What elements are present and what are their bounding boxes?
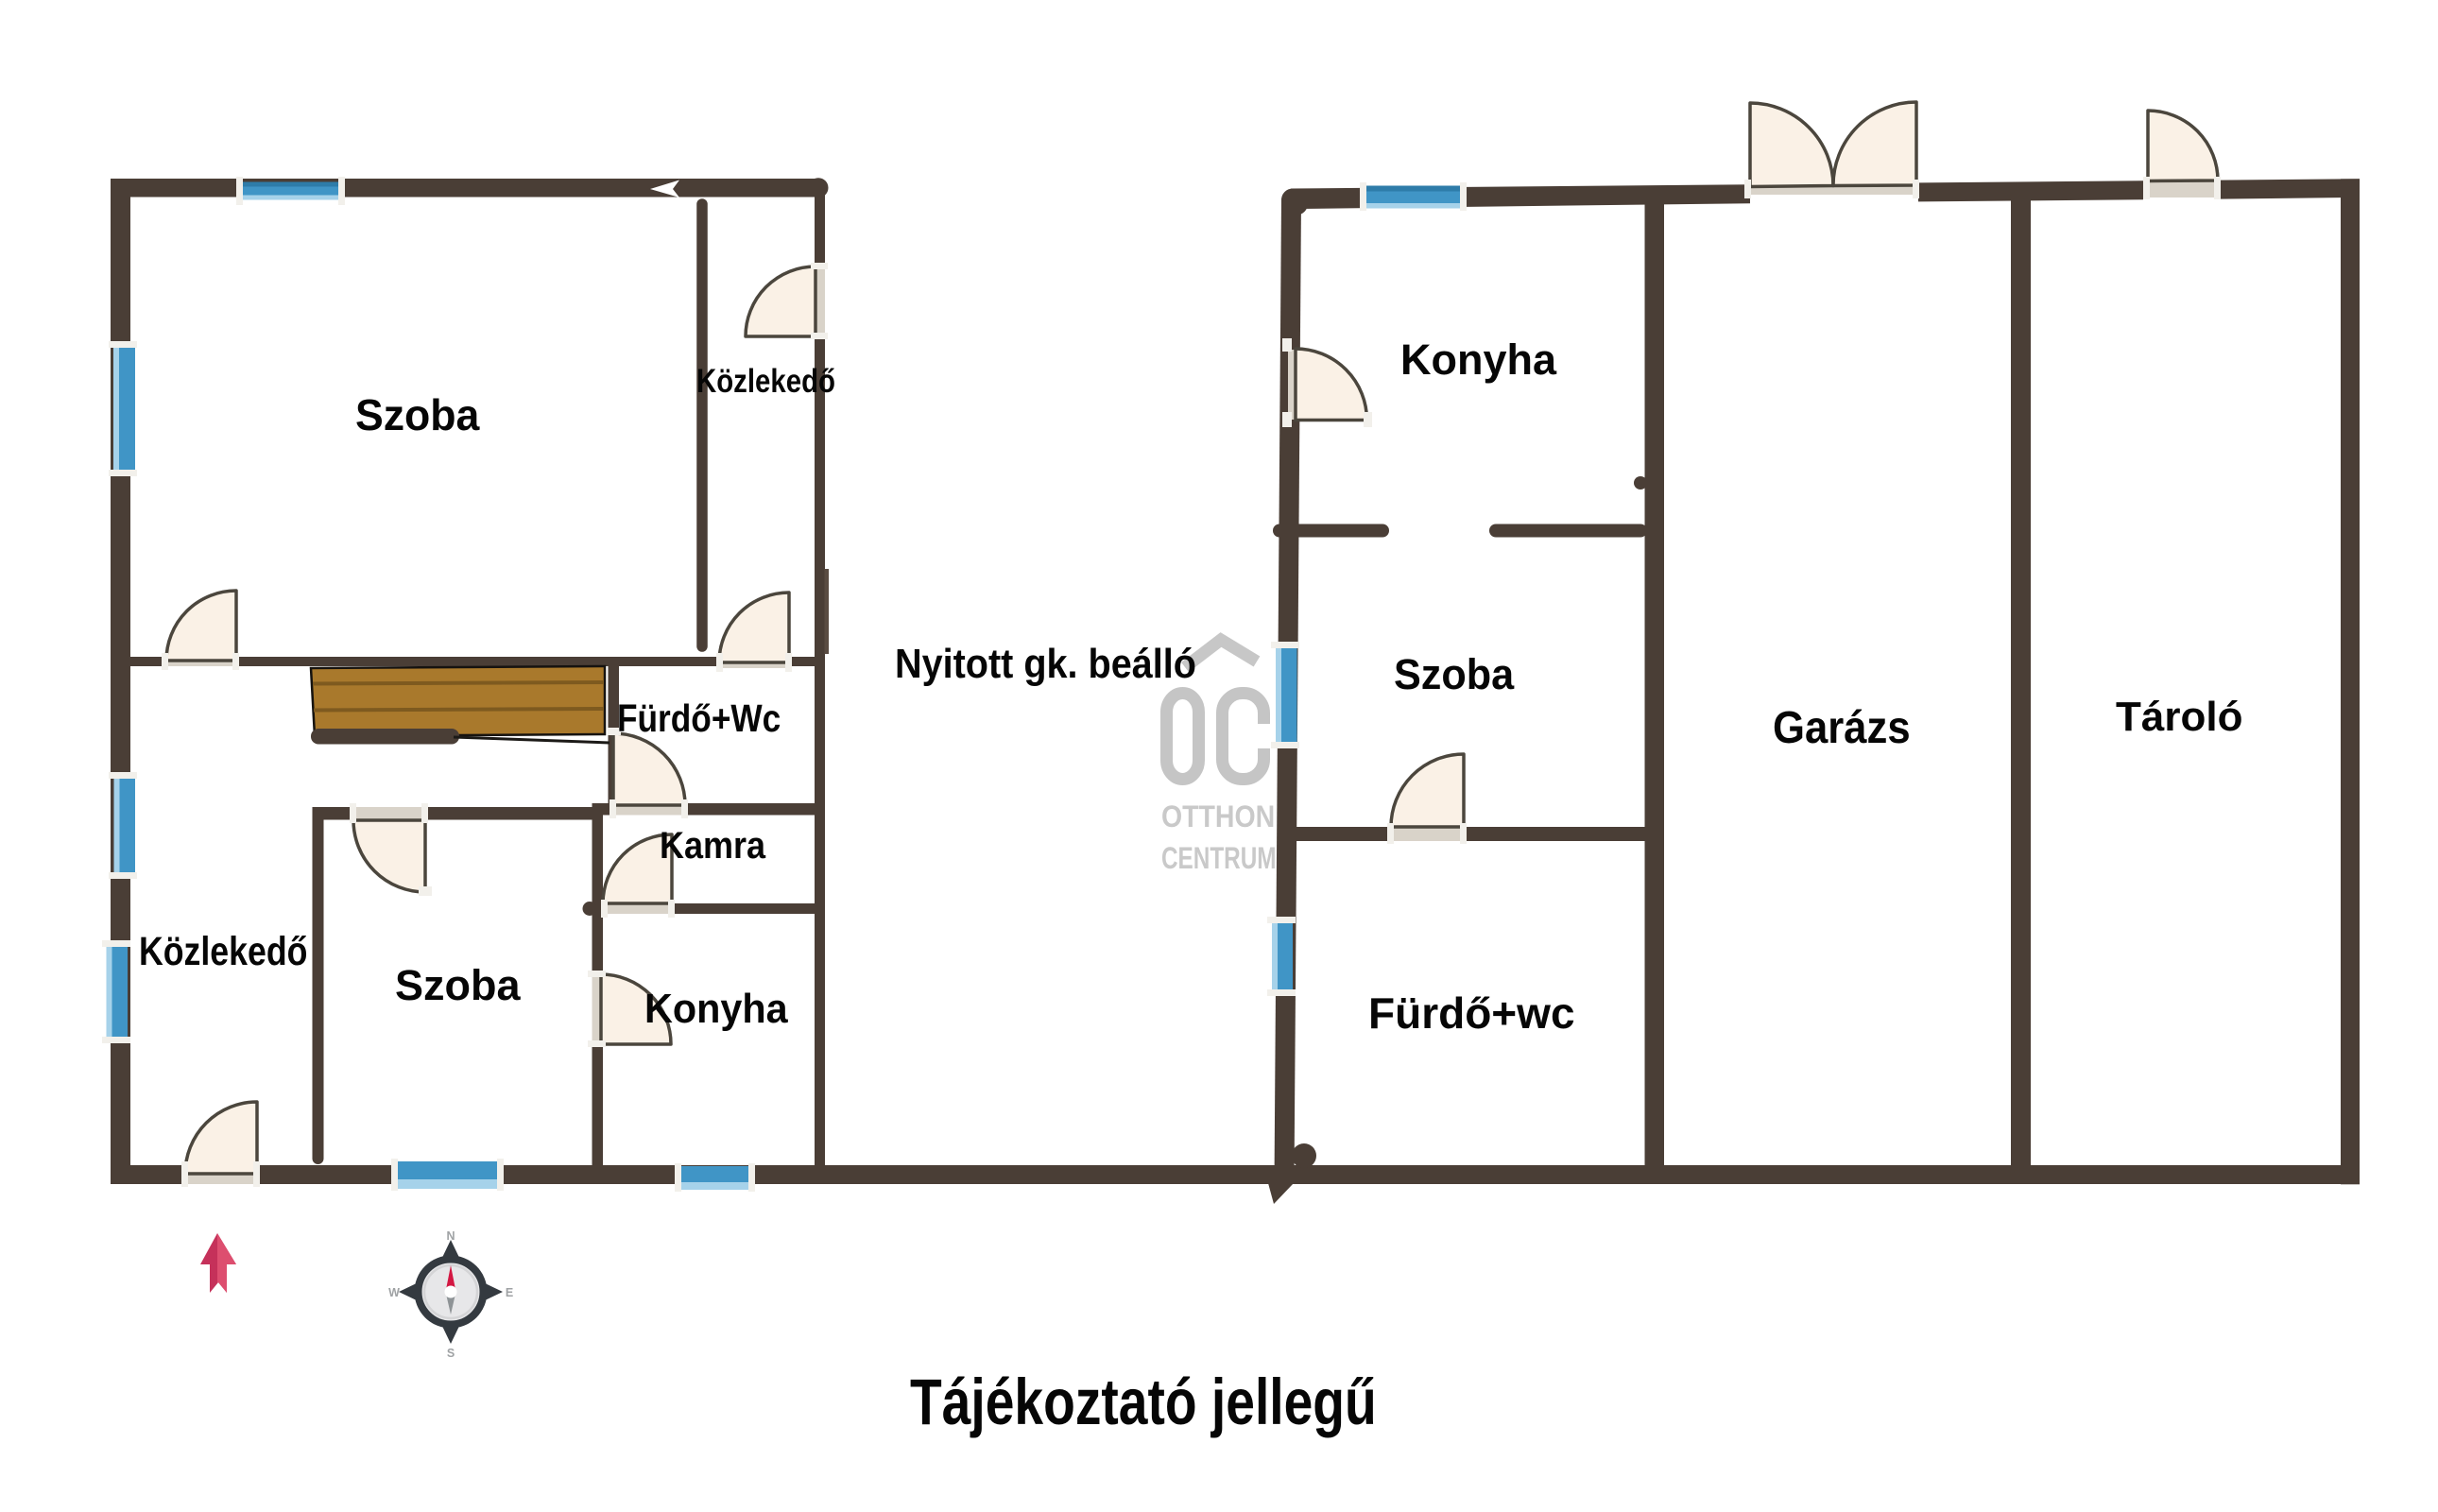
svg-text:Konyha: Konyha (644, 986, 789, 1032)
svg-text:Fürdő+wc: Fürdő+wc (1368, 988, 1575, 1038)
svg-text:E: E (506, 1286, 513, 1299)
svg-text:Közlekedő: Közlekedő (696, 363, 835, 400)
svg-text:S: S (447, 1347, 455, 1360)
svg-text:Garázs: Garázs (1773, 701, 1911, 752)
svg-text:Közlekedő: Közlekedő (139, 929, 307, 974)
svg-text:Kamra: Kamra (660, 825, 766, 867)
svg-text:Nyitott gk. beálló: Nyitott gk. beálló (895, 640, 1196, 686)
svg-text:N: N (446, 1229, 455, 1243)
svg-text:Konyha: Konyha (1400, 335, 1557, 384)
svg-text:Fürdő+Wc: Fürdő+Wc (617, 697, 781, 741)
svg-text:Tájékoztató jellegű: Tájékoztató jellegű (910, 1366, 1377, 1438)
svg-text:CENTRUM: CENTRUM (1161, 842, 1277, 876)
svg-text:Tároló: Tároló (2116, 694, 2242, 740)
svg-text:Szoba: Szoba (395, 961, 521, 1009)
svg-text:Szoba: Szoba (1394, 651, 1515, 698)
svg-text:Szoba: Szoba (355, 390, 480, 439)
svg-text:W: W (388, 1286, 400, 1299)
svg-text:OTTHON: OTTHON (1161, 801, 1275, 834)
